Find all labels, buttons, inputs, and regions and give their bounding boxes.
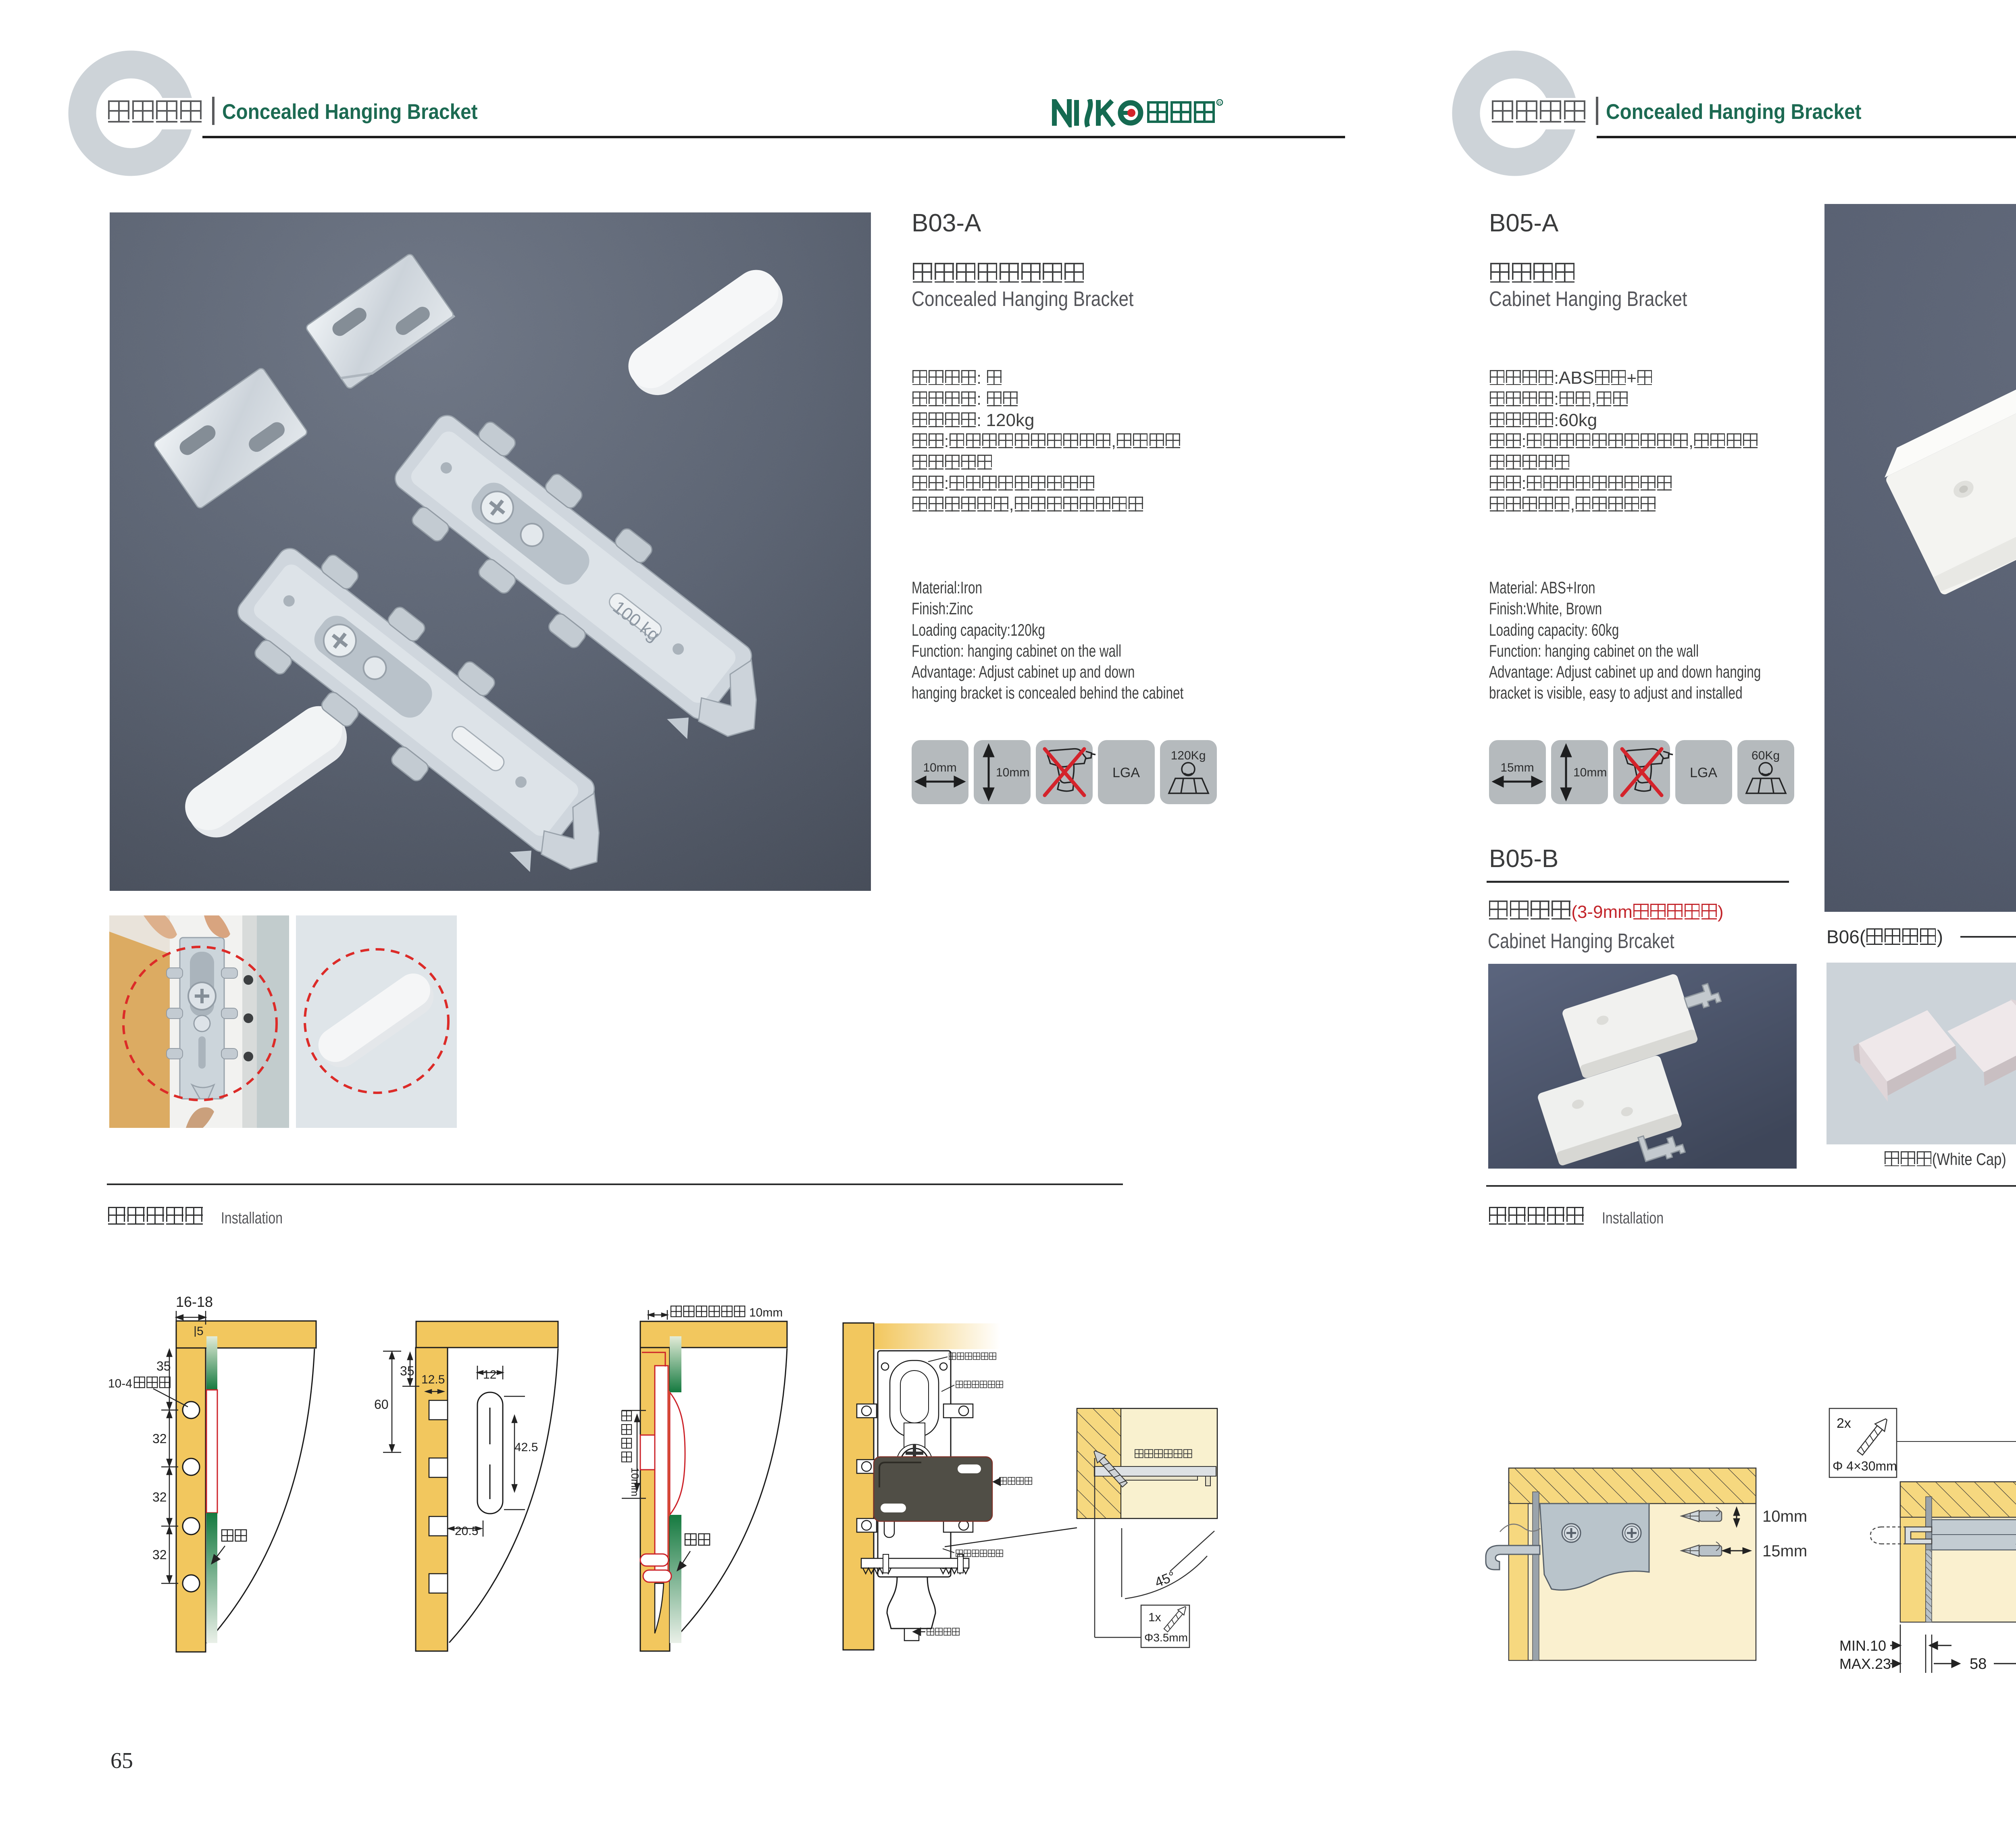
svg-text:Φ3.5mm: Φ3.5mm xyxy=(1144,1631,1188,1644)
svg-text:10mm: 10mm xyxy=(629,1467,641,1496)
svg-text:60Kg: 60Kg xyxy=(1752,749,1780,762)
svg-text:LGA: LGA xyxy=(1112,765,1140,780)
svg-text:LGA: LGA xyxy=(1690,765,1717,780)
svg-text:10-4: 10-4 xyxy=(108,1377,132,1390)
svg-text:5: 5 xyxy=(197,1325,204,1338)
svg-text:20.5: 20.5 xyxy=(455,1525,478,1538)
svg-text:45°: 45° xyxy=(1153,1568,1178,1590)
svg-text:1x: 1x xyxy=(1148,1611,1161,1624)
svg-text:MIN.10: MIN.10 xyxy=(1839,1637,1886,1654)
svg-text:10mm: 10mm xyxy=(996,766,1029,779)
svg-text:10mm: 10mm xyxy=(1762,1508,1807,1525)
svg-text:60: 60 xyxy=(374,1397,389,1412)
svg-text:R: R xyxy=(1218,101,1221,106)
svg-text:Φ 4×30mm: Φ 4×30mm xyxy=(1833,1459,1897,1473)
svg-text:12: 12 xyxy=(483,1368,496,1381)
svg-text:15mm: 15mm xyxy=(1500,761,1534,774)
svg-text:16-18: 16-18 xyxy=(176,1294,213,1310)
svg-text:120Kg: 120Kg xyxy=(1171,749,1206,762)
svg-text:42.5: 42.5 xyxy=(514,1441,538,1454)
svg-text:10mm: 10mm xyxy=(749,1306,783,1319)
svg-text:2x: 2x xyxy=(1837,1416,1851,1431)
svg-text:35: 35 xyxy=(156,1359,171,1373)
svg-text:10mm: 10mm xyxy=(1573,766,1607,779)
svg-text:58: 58 xyxy=(1970,1656,1987,1672)
svg-text:10mm: 10mm xyxy=(923,761,956,774)
svg-text:15mm: 15mm xyxy=(1762,1542,1807,1560)
svg-text:MAX.23: MAX.23 xyxy=(1839,1656,1891,1672)
svg-text:35: 35 xyxy=(400,1364,414,1378)
svg-text:32: 32 xyxy=(152,1490,167,1504)
svg-text:32: 32 xyxy=(152,1547,167,1562)
svg-text:12.5: 12.5 xyxy=(421,1373,445,1386)
svg-text:32: 32 xyxy=(152,1431,167,1446)
